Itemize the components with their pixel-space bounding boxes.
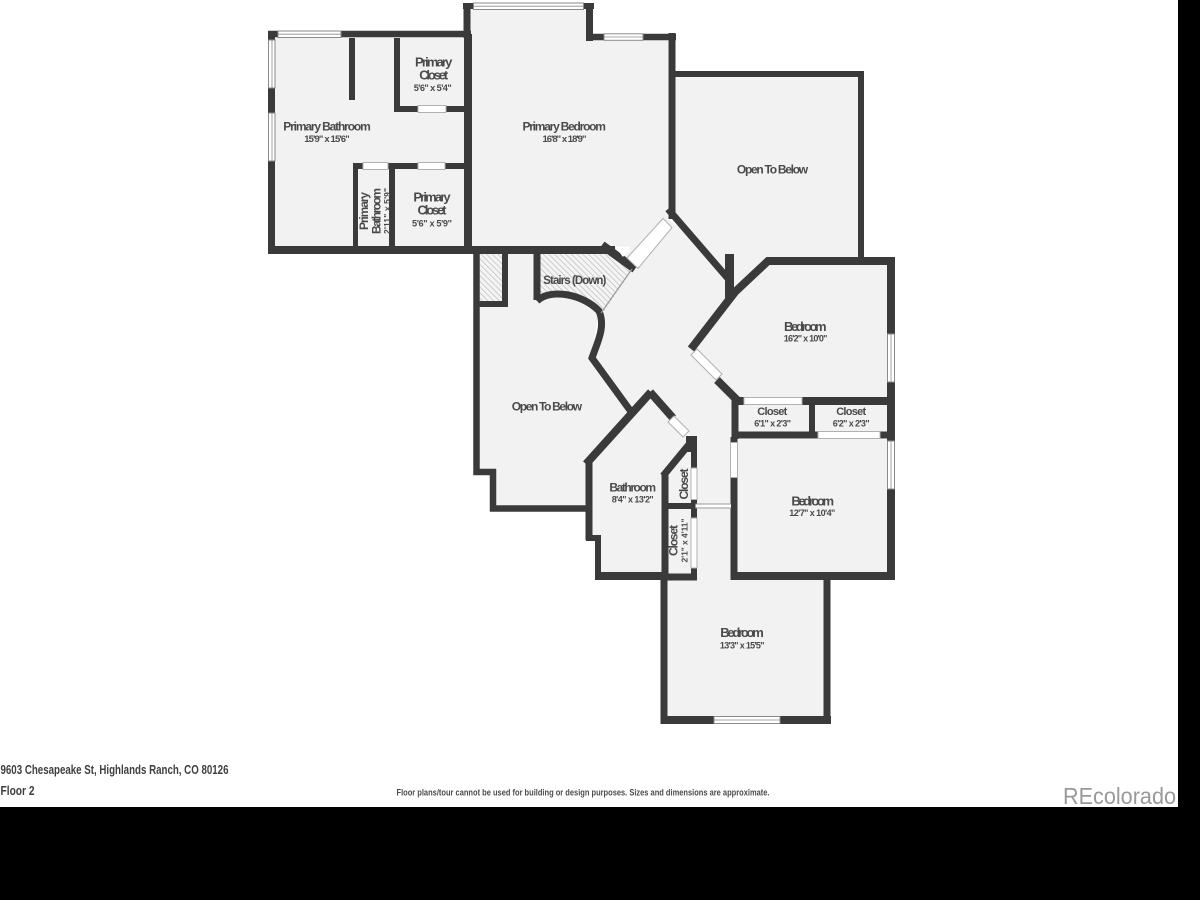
svg-text:Closet: Closet: [757, 406, 787, 418]
svg-text:Floor 2: Floor 2: [1, 784, 35, 798]
svg-text:Primary Bathroom: Primary Bathroom: [283, 120, 371, 134]
svg-text:Closet: Closet: [836, 406, 866, 418]
svg-text:6'1" x 2'3": 6'1" x 2'3": [754, 419, 791, 429]
svg-text:12'7" x 10'4": 12'7" x 10'4": [789, 508, 835, 518]
svg-text:16'8" x 18'9": 16'8" x 18'9": [543, 134, 587, 145]
svg-text:Stairs (Down): Stairs (Down): [543, 275, 606, 287]
svg-text:Floor plans/tour cannot be use: Floor plans/tour cannot be used for buil…: [397, 788, 770, 798]
svg-text:Primary Bedroom: Primary Bedroom: [522, 120, 606, 134]
svg-text:Bedroom: Bedroom: [791, 494, 834, 509]
svg-text:6'2" x 2'3": 6'2" x 2'3": [833, 419, 870, 429]
svg-text:Open To Below: Open To Below: [737, 162, 809, 176]
svg-text:5'6" x 5'9": 5'6" x 5'9": [412, 219, 452, 229]
svg-text:Closet: Closet: [677, 469, 691, 500]
svg-text:16'2" x 10'0": 16'2" x 10'0": [784, 334, 828, 344]
svg-text:Closet: Closet: [667, 525, 681, 556]
svg-text:9603 Chesapeake St, Highlands: 9603 Chesapeake St, Highlands Ranch, CO …: [1, 763, 229, 777]
svg-text:5'6" x 5'4": 5'6" x 5'4": [414, 83, 452, 93]
svg-text:REcolorado: REcolorado: [1063, 783, 1176, 809]
svg-text:Closet: Closet: [419, 67, 449, 82]
svg-text:15'9" x 15'6": 15'9" x 15'6": [304, 134, 350, 145]
svg-text:Bedroom: Bedroom: [720, 625, 764, 640]
svg-text:Closet: Closet: [418, 203, 448, 218]
svg-text:Bedroom: Bedroom: [784, 319, 827, 334]
svg-text:Open To Below: Open To Below: [512, 399, 583, 413]
svg-text:Bathroom: Bathroom: [609, 480, 656, 494]
svg-text:8'4" x 13'2": 8'4" x 13'2": [612, 495, 654, 505]
svg-text:13'3" x 15'5": 13'3" x 15'5": [720, 641, 765, 651]
svg-text:2'1" x 4'11": 2'1" x 4'11": [680, 519, 690, 563]
svg-text:2'11" x 5'9": 2'11" x 5'9": [382, 188, 392, 234]
